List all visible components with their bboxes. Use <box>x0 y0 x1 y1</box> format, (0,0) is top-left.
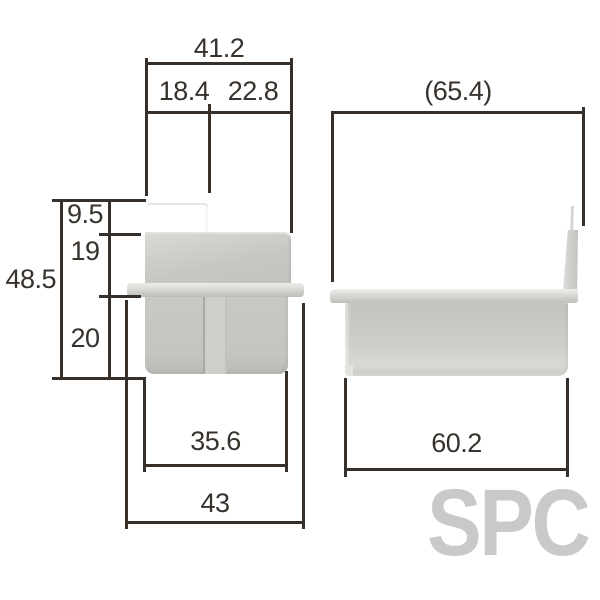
dim-lower-height-label: 20 <box>63 325 107 352</box>
dim-body-width-ext-right <box>285 371 288 472</box>
dim-overall-width-label: 41.2 <box>145 35 293 62</box>
side-blade-thin <box>570 206 574 234</box>
dim-body-width-label: 35.6 <box>143 428 288 455</box>
dim-body-depth-ext-left <box>344 378 347 477</box>
front-flange <box>127 283 304 297</box>
technical-drawing: SPC 41.2 18.4 22.8 (65.4) 48.5 9.5 19 20 <box>0 0 600 600</box>
dim-flange-width-line <box>125 521 305 524</box>
dim-overall-depth-ext-left <box>331 111 334 282</box>
side-body <box>345 303 568 376</box>
dim-body-depth-line <box>344 468 569 471</box>
dim-mid-height-label: 19 <box>63 238 107 265</box>
spc-watermark: SPC <box>427 475 588 570</box>
dim-overall-depth-ext-right <box>582 107 585 226</box>
dim-overall-width-ext-left <box>145 58 148 196</box>
dim-upper-widths-line <box>145 111 293 114</box>
dim-body-depth-ext-right <box>566 378 569 477</box>
front-top-step <box>147 203 208 235</box>
dim-body-width-ext-left <box>143 380 146 472</box>
dim-body-depth-label: 60.2 <box>344 430 569 457</box>
dim-height-segments-line <box>108 199 111 380</box>
front-upper-body <box>145 232 291 285</box>
side-flange <box>330 289 578 303</box>
side-body-step <box>345 365 353 376</box>
dim-flange-width-label: 43 <box>125 490 305 517</box>
side-blade <box>563 230 578 292</box>
dim-overall-depth-label: (65.4) <box>331 78 585 105</box>
dim-body-width-line <box>143 464 288 467</box>
dim-overall-height-label: 48.5 <box>2 266 56 293</box>
dim-upper-left-width-label: 18.4 <box>150 78 218 105</box>
dim-top-step-height-label: 9.5 <box>63 201 107 228</box>
front-lower-groove <box>203 297 227 374</box>
dim-height-tick-bottom <box>52 377 146 380</box>
dim-upper-right-width-label: 22.8 <box>214 78 292 105</box>
dim-overall-depth-line <box>331 111 585 114</box>
dim-upper-widths-mid-tick <box>208 104 211 193</box>
dim-height-tick-9-5 <box>99 233 141 236</box>
dim-height-tick-19 <box>99 295 141 298</box>
